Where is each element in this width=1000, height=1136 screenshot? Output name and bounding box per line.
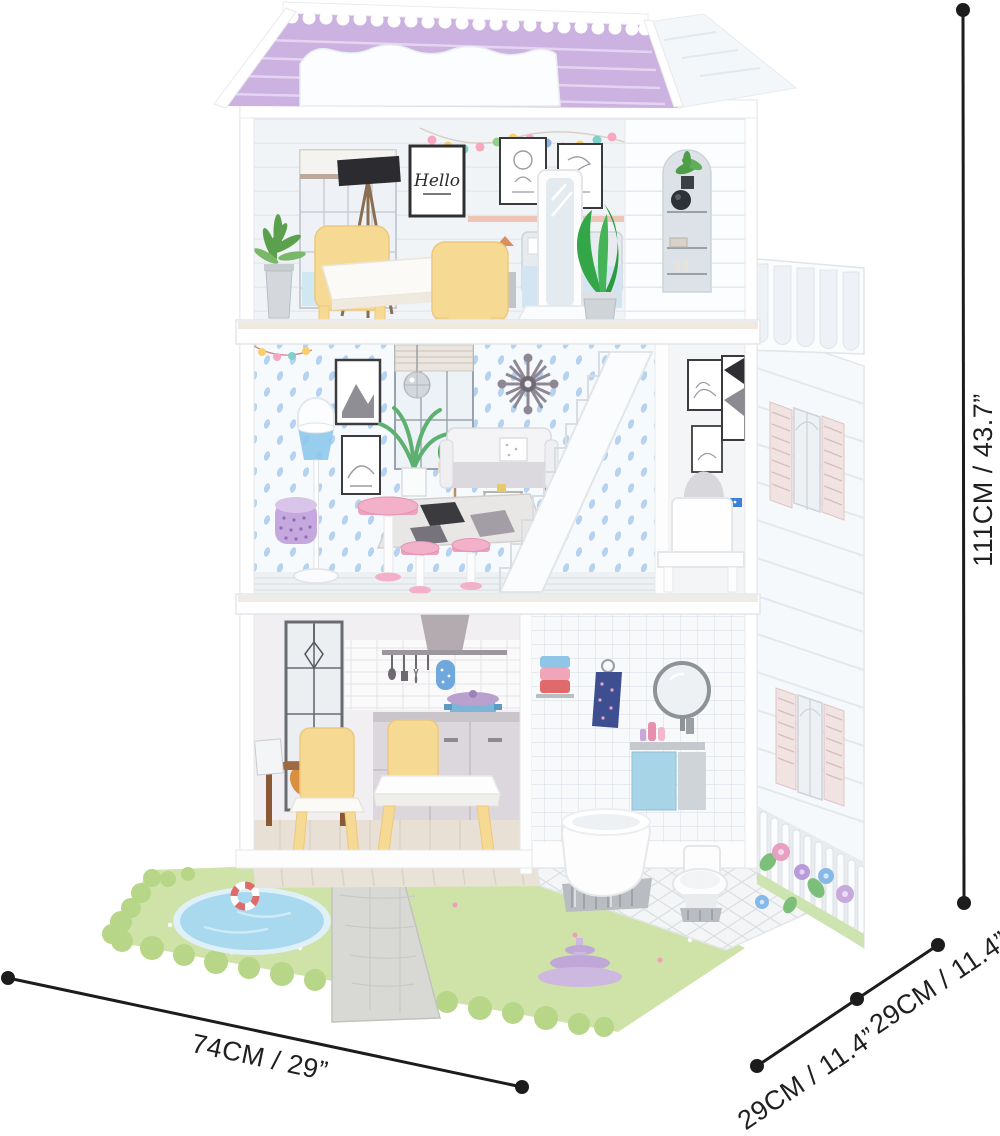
width-dimension-label: 74CM / 29” [189, 1028, 331, 1086]
floor-slab-2 [236, 594, 760, 614]
niche-clock [671, 190, 691, 210]
gable-wall [300, 45, 560, 106]
reading-room [658, 342, 745, 594]
dimension-height: 111CM / 43.7” [956, 3, 998, 910]
house-side-wall [755, 330, 864, 948]
pouf [275, 497, 317, 544]
right-pillar [745, 100, 757, 868]
base-board [236, 850, 532, 868]
bedroom-floor: Hello [252, 118, 625, 332]
oven-mitt-print [436, 660, 455, 690]
height-dimension-label: 111CM / 43.7” [968, 393, 998, 567]
hello-sign-text: Hello [413, 171, 460, 191]
hello-sign: Hello [410, 146, 464, 216]
living-room-floor [252, 342, 745, 594]
balcony-scallops [751, 264, 859, 350]
kitchen [252, 612, 520, 858]
tower [625, 100, 757, 322]
range-hood-print [420, 612, 470, 652]
kitchen-bath-divider [520, 612, 532, 874]
dimension-depth: 29CM / 11.4” 29CM / 11.4” [732, 925, 1000, 1135]
roof [214, 2, 796, 108]
product-dimension-diagram: Hello [0, 0, 1000, 1136]
toy-bathtub [562, 809, 652, 912]
floor-slab-1 [236, 320, 760, 344]
dollhouse-illustration: Hello [0, 0, 1000, 1136]
left-pillar [240, 100, 254, 868]
towel-stack-print [536, 656, 574, 698]
side-window-upper [770, 402, 844, 520]
arched-niche [663, 150, 711, 292]
niche-books [670, 238, 687, 247]
depth-dimension-label-front: 29CM / 11.4” [732, 1021, 881, 1135]
